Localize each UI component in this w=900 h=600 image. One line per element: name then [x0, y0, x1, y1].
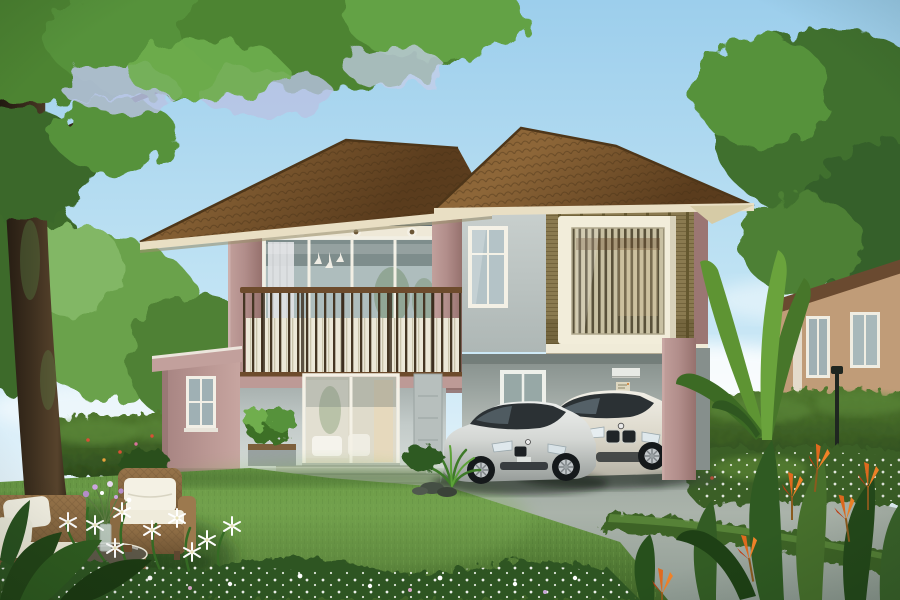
vignette — [0, 0, 900, 600]
architectural-rendering — [0, 0, 900, 600]
